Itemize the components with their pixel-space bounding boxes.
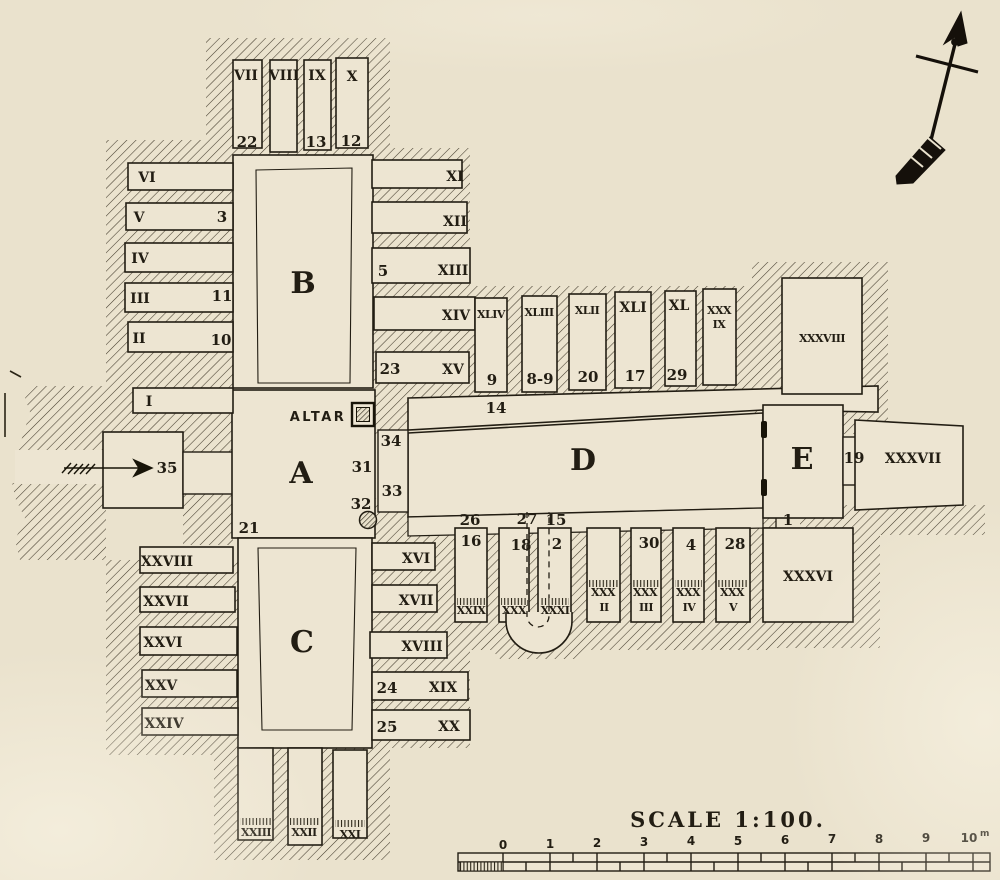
label-xiv: XIV: [442, 308, 471, 324]
scale-tick: 5: [734, 834, 742, 848]
label-iv: IV: [131, 251, 150, 267]
number-19: 19: [844, 449, 865, 467]
label-xlii: XLII: [575, 304, 600, 317]
label-ii: II: [132, 331, 145, 347]
label-ix: IX: [308, 68, 326, 84]
label-xii: XII: [443, 214, 467, 230]
scale-tick: 7: [828, 832, 836, 846]
label-xxxiv-line2: IV: [683, 601, 697, 614]
scale-unit: m: [980, 829, 989, 839]
label-xliii: XLIII: [524, 306, 554, 319]
label-xxvii: XXVII: [143, 594, 189, 610]
label-xxxviii: XXXVIII: [799, 332, 845, 345]
jamb-icon: [761, 479, 767, 496]
label-vi: VI: [137, 170, 155, 186]
scale-tick: 8: [875, 832, 883, 846]
scale-tick: 4: [687, 834, 695, 848]
label-xxix: XXIX: [457, 604, 487, 617]
column-icon: [360, 512, 377, 529]
label-xiii: XIII: [438, 263, 469, 279]
number-8-9: 8-9: [526, 370, 553, 388]
room-c-label: C: [290, 625, 314, 660]
number-20: 20: [578, 368, 599, 386]
number-17: 17: [625, 367, 646, 385]
floor-plan-drawing: SCALE 1:100.: [0, 0, 1000, 880]
number-10: 10: [211, 331, 232, 349]
entrance-corridor: [15, 450, 103, 484]
altar-icon-inner: [357, 408, 370, 422]
number-3: 3: [217, 208, 227, 226]
room-a-label: A: [288, 456, 313, 491]
scale-tick: 6: [781, 833, 789, 847]
label-xxiii: XXIII: [241, 826, 271, 839]
number-26: 26: [460, 511, 481, 529]
wall-vestibule-south: [183, 492, 233, 545]
number-34: 34: [381, 432, 402, 450]
number-11: 11: [212, 287, 233, 305]
label-xliv: XLIV: [477, 308, 506, 321]
label-viii: VIII: [268, 68, 300, 84]
label-vii: VII: [233, 68, 258, 84]
label-v: V: [133, 210, 146, 226]
label-xli: XLI: [619, 300, 646, 316]
number-18: 18: [511, 536, 532, 554]
label-i: I: [146, 394, 153, 410]
scale-tick: 10: [961, 831, 978, 845]
number-24: 24: [377, 679, 398, 697]
label-xv: XV: [442, 362, 465, 378]
number-31: 31: [352, 458, 373, 476]
label-xvii: XVII: [399, 593, 434, 609]
label-xxxv-line1: XXX: [720, 586, 745, 599]
number-35: 35: [157, 459, 178, 477]
wall-altar-pier: [372, 394, 412, 434]
scale-tick: 1: [546, 837, 554, 851]
wall-entrance-upper-torn: [18, 386, 106, 452]
scale-tick: 2: [593, 836, 601, 850]
number-25: 25: [377, 718, 398, 736]
label-x: X: [347, 69, 358, 85]
number-4: 4: [686, 536, 696, 554]
label-xl: XL: [669, 298, 690, 314]
number-27: 27: [517, 510, 538, 528]
label-xxiv: XXIV: [144, 716, 184, 732]
number-16: 16: [461, 532, 482, 550]
number-21: 21: [239, 519, 260, 537]
number-5: 5: [378, 262, 388, 280]
number-23: 23: [380, 360, 401, 378]
wall-below-xxxvi: [755, 620, 880, 648]
label-xxxi: XXXI: [541, 604, 570, 617]
number-30: 30: [639, 534, 660, 552]
jamb-icon: [761, 421, 767, 438]
label-xxxiii-line2: III: [639, 601, 653, 614]
label-xxxix-line1: XXX: [707, 304, 732, 317]
room-b-label: B: [290, 266, 315, 301]
label-xviii: XVIII: [401, 639, 442, 655]
label-xxv: XXV: [145, 678, 179, 694]
scale-tick: 0: [499, 838, 507, 852]
label-xxxvi: XXXVI: [783, 569, 833, 585]
scale-fine-divisions: [460, 862, 503, 871]
label-xxii: XXII: [291, 826, 317, 839]
number-33: 33: [382, 482, 403, 500]
label-xxxii-line1: XXX: [591, 586, 616, 599]
number-12: 12: [341, 132, 362, 150]
label-xxx: XXX: [502, 604, 527, 617]
number-22: 22: [237, 133, 258, 151]
number-13: 13: [306, 133, 327, 151]
number-28: 28: [725, 535, 746, 553]
number-14: 14: [486, 399, 507, 417]
number-15: 15: [546, 511, 567, 529]
label-xix: XIX: [429, 680, 457, 696]
passage-vestibule-to-a: [183, 452, 233, 494]
scale-tick: 3: [640, 835, 648, 849]
label-xxxiv-line1: XXX: [676, 586, 701, 599]
label-xxxv-line2: V: [728, 601, 738, 614]
label-xxxix-line2: IX: [713, 318, 727, 331]
wall-vestibule-north: [183, 415, 233, 455]
altar-label: ALTAR: [290, 410, 347, 425]
room-e-label: E: [791, 442, 814, 477]
label-iii: III: [130, 291, 150, 307]
number-1: 1: [783, 511, 793, 529]
label-xxi: XXI: [340, 828, 361, 841]
label-xxviii: XXVIII: [141, 554, 193, 570]
label-xxxiii-line1: XXX: [633, 586, 658, 599]
scale-title: SCALE 1:100.: [630, 807, 826, 832]
number-9: 9: [487, 371, 497, 389]
label-xxxii-line2: II: [599, 601, 609, 614]
scale-tick: 9: [922, 831, 930, 845]
label-xxxvii: XXXVII: [885, 451, 942, 467]
label-xvi: XVI: [402, 551, 430, 567]
label-xxvi: XXVI: [143, 635, 182, 651]
number-29: 29: [667, 366, 688, 384]
number-32: 32: [351, 495, 372, 513]
number-2: 2: [552, 535, 562, 553]
floor-plan-page: SCALE 1:100.: [0, 0, 1000, 880]
room-d-label: D: [570, 443, 596, 478]
label-xi: XI: [446, 169, 463, 185]
label-xx: XX: [438, 719, 460, 735]
